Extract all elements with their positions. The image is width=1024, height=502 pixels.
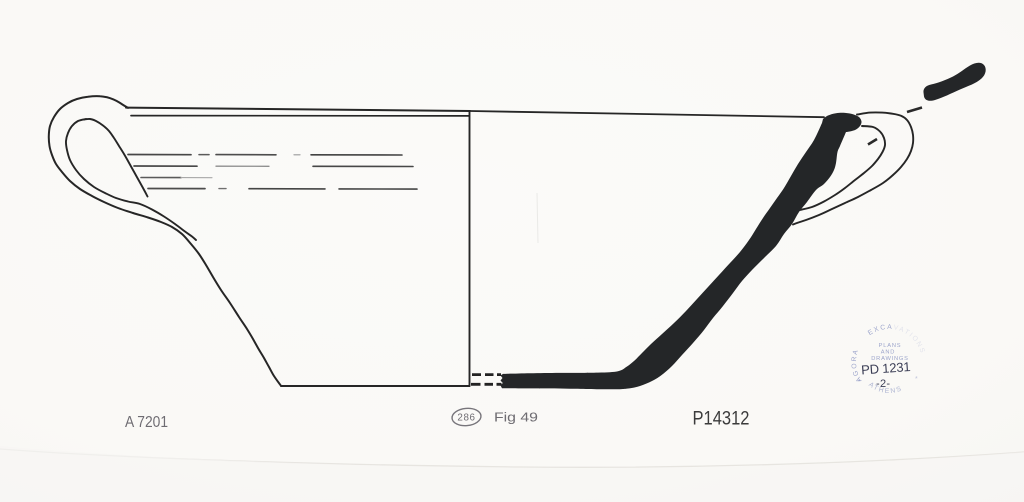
svg-text:P14312: P14312 xyxy=(693,408,750,430)
svg-text:*: * xyxy=(858,379,861,386)
svg-text:AND: AND xyxy=(881,350,895,356)
svg-text:PLANS: PLANS xyxy=(879,343,902,349)
svg-text:*: * xyxy=(915,376,918,383)
svg-text:A 7201: A 7201 xyxy=(125,414,168,431)
svg-text:Fig 49: Fig 49 xyxy=(494,410,538,425)
svg-text:-2-: -2- xyxy=(876,378,890,390)
svg-text:286: 286 xyxy=(457,413,475,424)
